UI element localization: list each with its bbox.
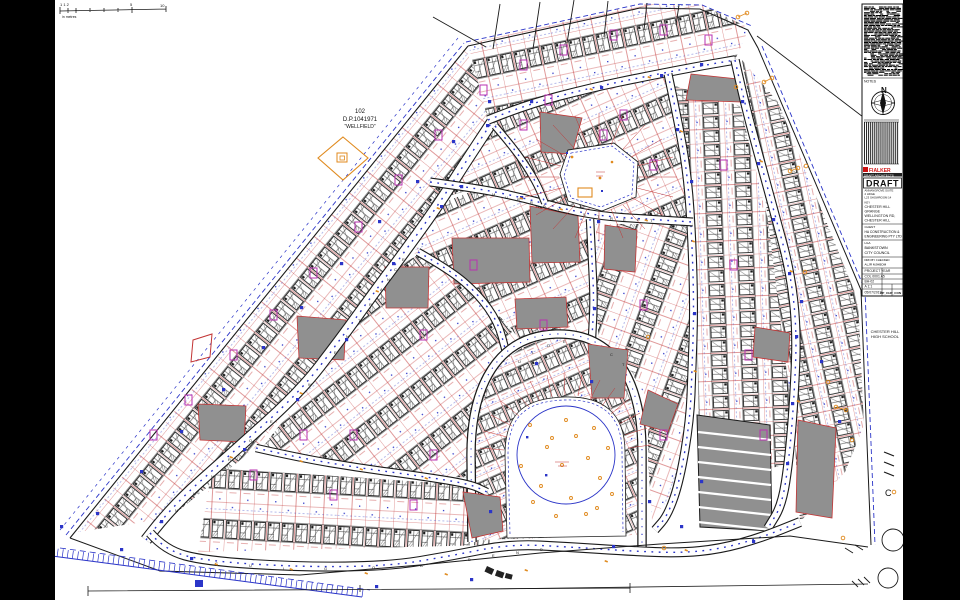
- svg-text:W: W: [308, 382, 312, 387]
- svg-text:E: E: [270, 419, 273, 424]
- svg-text:D: D: [540, 547, 543, 552]
- svg-text:E: E: [402, 257, 405, 262]
- svg-text:CLIENT: CLIENT: [865, 225, 876, 229]
- svg-text:KEY: KEY: [865, 201, 871, 205]
- svg-text:HA CONSTRUCTION &: HA CONSTRUCTION &: [865, 230, 901, 234]
- svg-text:R: R: [610, 216, 613, 221]
- svg-text:CITY COUNCIL: CITY COUNCIL: [865, 251, 890, 255]
- svg-text:COL 0001 A5: COL 0001 A5: [865, 275, 885, 279]
- svg-text:U: U: [249, 563, 252, 568]
- svg-text:ALJR MJHBDM: ALJR MJHBDM: [865, 263, 887, 267]
- svg-text:E: E: [637, 217, 640, 222]
- svg-text:C: C: [394, 267, 397, 272]
- svg-text:U: U: [518, 359, 521, 364]
- svg-text:BH-02: BH-02: [865, 280, 875, 284]
- svg-text:D.P.1041971: D.P.1041971: [343, 117, 378, 123]
- svg-text:M: M: [175, 508, 178, 513]
- svg-text:C: C: [885, 488, 892, 498]
- svg-text:PROJECT YEAR: PROJECT YEAR: [865, 269, 891, 273]
- svg-text:L23 SHOWROOM 14: L23 SHOWROOM 14: [865, 196, 892, 200]
- svg-text:BANKSTOWN: BANKSTOWN: [865, 246, 889, 250]
- svg-text:E: E: [334, 350, 337, 355]
- svg-text:DRAFT: DRAFT: [866, 179, 899, 189]
- svg-text:M: M: [492, 192, 495, 197]
- svg-text:NOTES: NOTES: [864, 80, 877, 84]
- svg-text:N: N: [516, 550, 519, 555]
- svg-text:“WELLFIELD”: “WELLFIELD”: [344, 124, 375, 130]
- svg-text:ENGINEERING PTY LTD: ENGINEERING PTY LTD: [865, 235, 903, 239]
- svg-text:B: B: [500, 386, 503, 391]
- svg-text:R: R: [580, 340, 583, 345]
- svg-text:10: 10: [160, 3, 165, 8]
- svg-text:O: O: [249, 438, 252, 443]
- svg-text:O: O: [508, 372, 511, 377]
- svg-text:HP_CHP_CON: HP_CHP_CON: [880, 291, 902, 295]
- svg-text:N: N: [387, 277, 390, 282]
- svg-text:HIGH SCHOOL: HIGH SCHOOL: [871, 334, 900, 339]
- svg-text:A: A: [380, 287, 383, 292]
- svg-text:CHESTER HILL: CHESTER HILL: [865, 219, 891, 223]
- svg-text:D: D: [547, 343, 550, 348]
- svg-text:A: A: [543, 203, 546, 208]
- svg-text:E: E: [623, 217, 626, 222]
- svg-text:CHESTER HILL: CHESTER HILL: [865, 205, 891, 209]
- svg-text:LGA: LGA: [865, 241, 871, 245]
- svg-text:R: R: [517, 197, 520, 202]
- svg-text:G: G: [324, 566, 327, 571]
- svg-text:in metres: in metres: [62, 15, 77, 19]
- svg-text:102: 102: [355, 109, 366, 115]
- svg-text:U: U: [505, 195, 508, 200]
- svg-text:DRAFT ARCHITECTS: DRAFT ARCHITECTS: [864, 173, 894, 177]
- svg-text:S: S: [583, 212, 586, 217]
- svg-text:1 1 2: 1 1 2: [60, 2, 70, 7]
- svg-text:R: R: [369, 302, 372, 307]
- svg-text:GRANGE: GRANGE: [865, 210, 881, 214]
- svg-text:R: R: [530, 200, 533, 205]
- svg-text:U: U: [193, 491, 196, 496]
- svg-text:WELLINGTON RD,: WELLINGTON RD,: [865, 214, 896, 218]
- svg-text:A: A: [420, 563, 423, 568]
- svg-text:N: N: [211, 474, 214, 479]
- svg-text:DRN BY CHECKED: DRN BY CHECKED: [865, 258, 890, 262]
- svg-text:A 1:1: A 1:1: [865, 285, 873, 289]
- svg-text:E: E: [563, 339, 566, 344]
- svg-text:C: C: [610, 352, 613, 357]
- svg-text:N: N: [881, 86, 887, 95]
